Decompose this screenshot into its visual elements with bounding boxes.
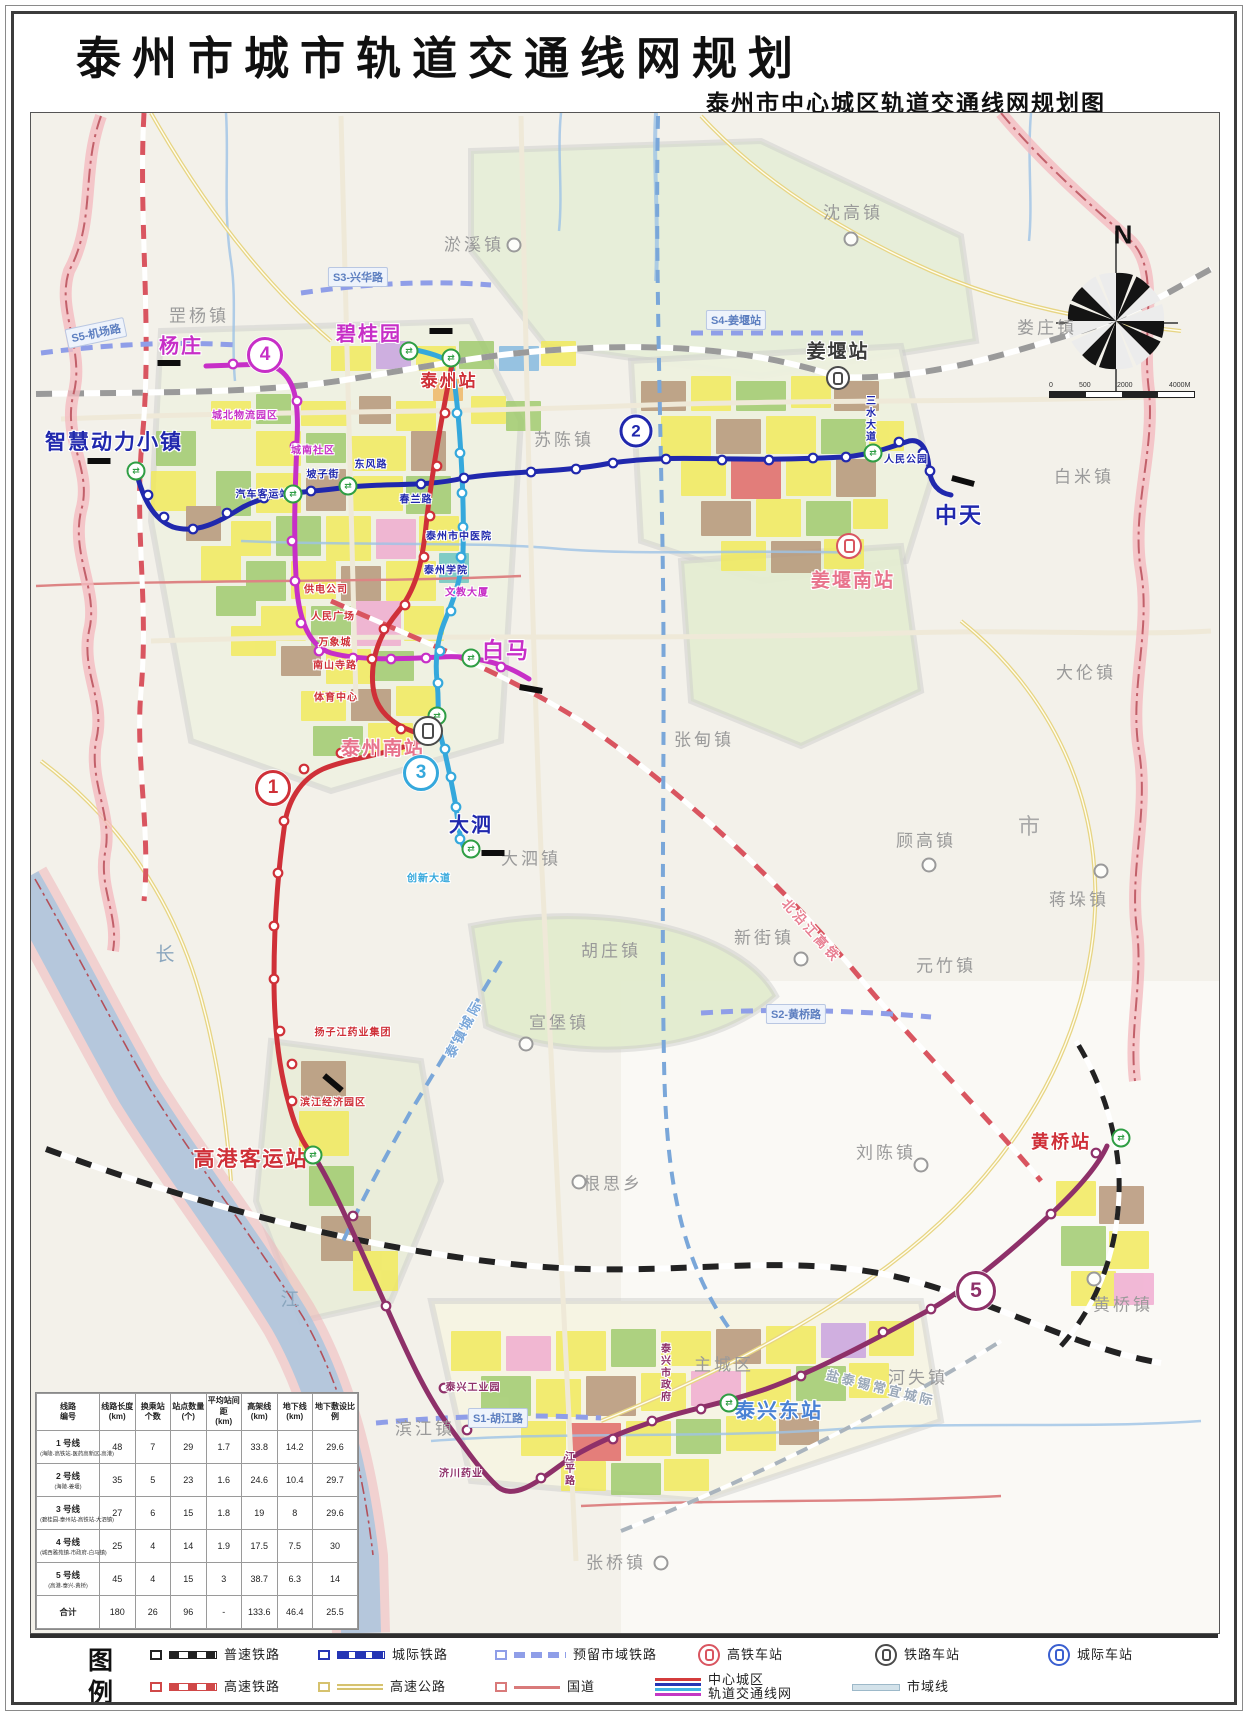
town-marker (572, 1175, 587, 1190)
town-label: 张甸镇 (674, 726, 734, 751)
legend: 图 例 普速铁路城际铁路预留市域铁路高铁车站铁路车站城际车站 高速铁路高速公路国… (30, 1634, 1218, 1706)
town-label: 淤溪镇 (444, 231, 504, 256)
station-label: 杨庄 (159, 330, 203, 359)
expressway-swatch (337, 1684, 383, 1690)
station-label: 黄桥站 (1031, 1128, 1091, 1154)
town-label: 白米镇 (1054, 463, 1114, 488)
minor-station-label: 体育中心 (314, 689, 358, 704)
legend-item: 高铁车站 (698, 1648, 783, 1662)
train-glyph (833, 372, 843, 385)
corridor-label: S1-胡江路 (468, 1408, 528, 1428)
town-label: 顾高镇 (896, 827, 956, 852)
scale-tick-2: 2000 (1117, 382, 1133, 389)
legend-item: 铁路车站 (875, 1648, 960, 1662)
legend-item: 城际铁路 (318, 1648, 448, 1662)
table-header: 地下线(km) (277, 1394, 313, 1431)
corridor-label: S4-姜堰站 (706, 310, 766, 330)
legend-pre-mark (495, 1682, 507, 1692)
town-label: 大泗镇 (501, 845, 561, 870)
table-header: 线路编号 (37, 1394, 100, 1431)
town-marker (914, 1158, 929, 1173)
line-4-badge: 4 (247, 337, 283, 373)
rail-hsr-swatch (169, 1683, 217, 1691)
metro-network-swatch (655, 1678, 701, 1697)
table-header: 地下敷设比例 (313, 1394, 358, 1431)
terminus-tick (519, 684, 543, 694)
minor-station-label: 坡子街 (307, 466, 340, 481)
transfer-station-icon: ⇄ (400, 342, 419, 361)
town-marker (1094, 864, 1109, 879)
legend-item: 普速铁路 (150, 1648, 280, 1662)
transfer-station-icon: ⇄ (462, 840, 481, 859)
line-statistics-table: 线路编号线路长度(km)换乘站个数站点数量(个)平均站间距(km)高架线(km)… (35, 1392, 359, 1630)
minor-station-label: 创新大道 (407, 870, 451, 885)
town-marker (654, 1556, 669, 1571)
transfer-station-icon: ⇄ (304, 1146, 323, 1165)
town-label: 蒋垛镇 (1049, 886, 1109, 911)
minor-station-label: 南山寺路 (313, 657, 357, 672)
legend-label: 市域线 (907, 1680, 949, 1694)
corridor-label: S3-兴华路 (328, 267, 388, 287)
minor-station-label: 万象城 (319, 634, 352, 649)
city-line-swatch (852, 1684, 900, 1691)
table-header: 平均站间距(km) (206, 1394, 242, 1431)
transfer-station-icon: ⇄ (442, 349, 461, 368)
table-header: 线路长度(km) (100, 1394, 136, 1431)
terminus-tick (158, 360, 181, 366)
legend-label: 高速公路 (390, 1680, 446, 1694)
legend-pre-mark (495, 1650, 507, 1660)
table-row: 2 号线(海陵-姜堰)355231.624.610.429.7 (37, 1464, 358, 1497)
station-label: 姜堰站 (806, 337, 869, 364)
legend-item: 高速铁路 (150, 1680, 280, 1694)
transfer-station-icon: ⇄ (720, 1394, 739, 1413)
station-label: 碧桂园 (336, 318, 402, 347)
town-label: 罡杨镇 (169, 302, 229, 327)
minor-station-label: 济川药业 (439, 1465, 483, 1480)
legend-label: 高铁车站 (727, 1648, 783, 1662)
terminus-tick (951, 475, 975, 487)
minor-station-label: 城南社区 (291, 442, 335, 457)
rail-station-icon (875, 1644, 897, 1666)
minor-station-label: 汽车客运站 (236, 486, 291, 501)
legend-label: 高速铁路 (224, 1680, 280, 1694)
transfer-station-icon: ⇄ (864, 444, 883, 463)
scale-zero: 0 (1049, 382, 1053, 389)
station-label: 大泗 (449, 809, 493, 838)
station-label: 姜堰南站 (811, 566, 895, 593)
legend-label: 中心城区轨道交通线网 (708, 1673, 792, 1700)
minor-station-label: 泰兴工业园 (446, 1379, 501, 1394)
town-marker (794, 952, 809, 967)
legend-pre-mark (318, 1650, 330, 1660)
legend-pre-mark (318, 1682, 330, 1692)
corridor-label: S2-黄桥路 (766, 1004, 826, 1024)
town-label: 根思乡 (583, 1170, 643, 1195)
station-label: 高港客运站 (194, 1143, 309, 1173)
town-label: 娄庄镇 (1017, 314, 1077, 339)
legend-char-1: 图 (88, 1641, 113, 1677)
table-row: 5 号线(高港-泰兴-黄桥)45415338.76.314 (37, 1563, 358, 1596)
town-marker (922, 858, 937, 873)
minor-station-label: 泰州市中医院 (426, 528, 492, 543)
national-road-swatch (514, 1686, 560, 1689)
town-marker (1087, 1272, 1102, 1287)
legend-pre-mark (150, 1682, 162, 1692)
transfer-station-icon: ⇄ (339, 477, 358, 496)
table-header: 换乘站个数 (135, 1394, 171, 1431)
transfer-station-icon: ⇄ (462, 649, 481, 668)
minor-station-label: 城北物流园区 (212, 407, 278, 422)
terminus-tick (430, 328, 453, 334)
line-1-badge: 1 (255, 770, 291, 806)
town-label: 黄桥镇 (1093, 1291, 1153, 1316)
compass-rose (1051, 226, 1181, 396)
town-label: 新街镇 (734, 924, 794, 949)
minor-station-label: 泰州学院 (424, 562, 468, 577)
intercity-station-icon (1048, 1644, 1070, 1666)
legend-item: 预留市域铁路 (495, 1648, 657, 1662)
town-label: 大伦镇 (1056, 659, 1116, 684)
legend-item: 市域线 (852, 1680, 949, 1694)
corridor-label: S5-机场路 (65, 317, 128, 349)
rail-normal-swatch (169, 1651, 217, 1659)
line-2-badge: 2 (620, 415, 653, 448)
rail-reserved-swatch (514, 1652, 566, 1658)
region-char: 长 (155, 940, 176, 967)
legend-item: 中心城区轨道交通线网 (655, 1680, 792, 1694)
transfer-station-icon: ⇄ (1112, 1129, 1131, 1148)
minor-station-label: 三水大道 (862, 395, 877, 443)
minor-station-label: 江平路 (561, 1451, 576, 1487)
table-row: 3 号线(碧桂园-泰州站-高铁站-大泗镇)276151.819829.6 (37, 1497, 358, 1530)
town-label: 宣堡镇 (529, 1009, 589, 1034)
planning-poster: 泰州市城市轨道交通线网规划 泰州市中心城区轨道交通线网规划图 (0, 0, 1248, 1716)
rail-intercity-swatch (337, 1651, 385, 1659)
minor-station-label: 滨江经济园区 (300, 1094, 366, 1109)
compass-north-label: N (1114, 220, 1133, 251)
line-5-badge: 5 (956, 1271, 996, 1311)
minor-station-label: 人民公园 (884, 451, 928, 466)
scale-segments (1049, 391, 1195, 398)
town-label: 胡庄镇 (581, 937, 641, 962)
minor-station-label: 扬子江药业集团 (315, 1024, 392, 1039)
table-header: 站点数量(个) (171, 1394, 207, 1431)
town-label: 刘陈镇 (856, 1139, 916, 1164)
station-label: 中天 (935, 498, 983, 530)
legend-pre-mark (150, 1650, 162, 1660)
legend-label: 铁路车站 (904, 1648, 960, 1662)
town-marker (844, 232, 859, 247)
region-char: 江 (280, 1285, 301, 1312)
legend-char-2: 例 (88, 1673, 113, 1709)
table-total-row: 合计1802696-133.646.425.5 (37, 1596, 358, 1629)
table-header: 高架线(km) (242, 1394, 278, 1431)
table-row: 1 号线(海陵-高铁站-医药高新区-高港)487291.733.814.229.… (37, 1431, 358, 1464)
terminus-tick (482, 850, 505, 856)
rail-station-icon (826, 366, 850, 390)
legend-label: 城际铁路 (392, 1648, 448, 1662)
minor-station-label: 春兰路 (400, 491, 433, 506)
table-row: 4 号线(城西雅苑镇-市政府-白马镇)254141.917.57.530 (37, 1530, 358, 1563)
legend-item: 城际车站 (1048, 1648, 1133, 1662)
rail-station-icon (413, 716, 443, 746)
hsr-station-icon (698, 1644, 720, 1666)
train-glyph (844, 539, 855, 553)
legend-label: 城际车站 (1077, 1648, 1133, 1662)
hsr-station-icon (836, 533, 862, 559)
legend-label: 普速铁路 (224, 1648, 280, 1662)
legend-label: 预留市域铁路 (573, 1648, 657, 1662)
legend-item: 高速公路 (318, 1680, 446, 1694)
terminus-tick (88, 458, 111, 464)
train-glyph (422, 723, 434, 739)
minor-station-label: 供电公司 (304, 581, 348, 596)
line-3-badge: 3 (403, 755, 439, 791)
town-label: 主城区 (694, 1351, 754, 1376)
scale-tick-3: 4000M (1169, 382, 1190, 389)
town-label: 滨江镇 (395, 1415, 455, 1440)
station-label: 泰兴东站 (735, 1395, 823, 1424)
legend-item: 国道 (495, 1680, 595, 1694)
town-label: 张桥镇 (586, 1549, 646, 1574)
town-marker (507, 238, 522, 253)
town-label: 苏陈镇 (534, 426, 594, 451)
town-label: 元竹镇 (916, 952, 976, 977)
railway-name-label: 泰镇城际 (440, 995, 487, 1060)
legend-label: 国道 (567, 1680, 595, 1694)
station-label: 智慧动力小镇 (45, 426, 183, 456)
town-label: 沈高镇 (823, 199, 883, 224)
town-marker (519, 1037, 534, 1052)
terminus-tick (322, 1073, 343, 1092)
page-title: 泰州市城市轨道交通线网规划 (76, 22, 804, 87)
minor-station-label: 东风路 (355, 456, 388, 471)
minor-station-label: 文教大厦 (445, 584, 489, 599)
station-label: 泰州站 (421, 367, 478, 392)
minor-station-label: 泰兴市政府 (657, 1343, 672, 1403)
minor-station-label: 人民广场 (311, 608, 355, 623)
station-label: 白马 (482, 633, 530, 665)
transfer-station-icon: ⇄ (284, 485, 303, 504)
transfer-station-icon: ⇄ (127, 462, 146, 481)
scale-tick-1: 500 (1079, 382, 1091, 389)
region-char: 市 (1018, 809, 1042, 841)
scale-bar: 0 500 2000 4000M (1049, 391, 1195, 398)
